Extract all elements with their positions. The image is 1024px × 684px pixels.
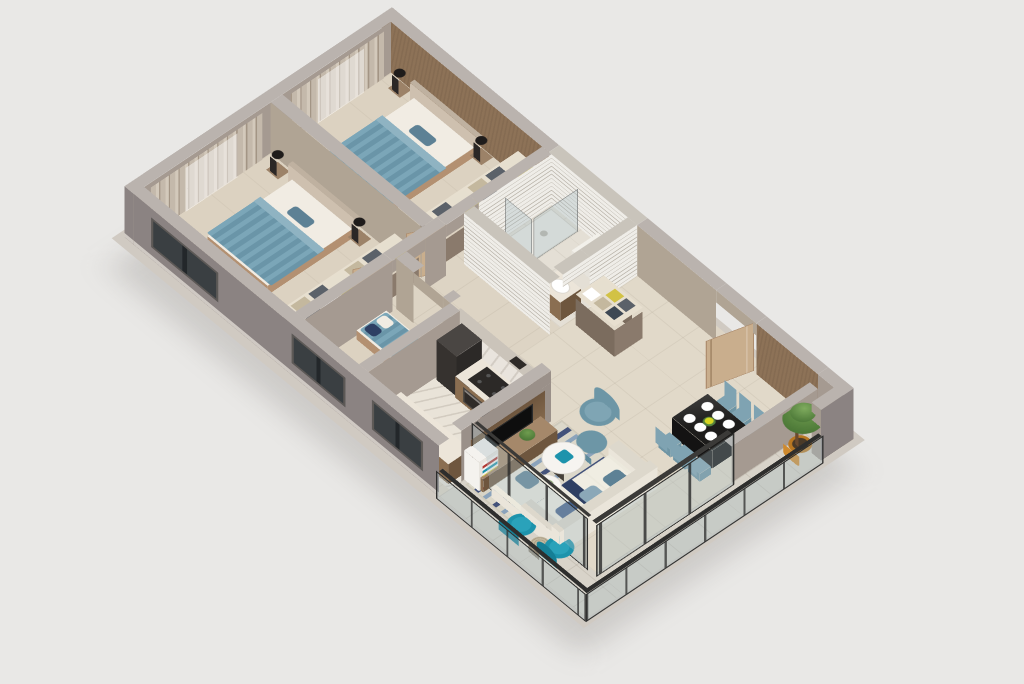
floorplan-render <box>0 0 1024 684</box>
